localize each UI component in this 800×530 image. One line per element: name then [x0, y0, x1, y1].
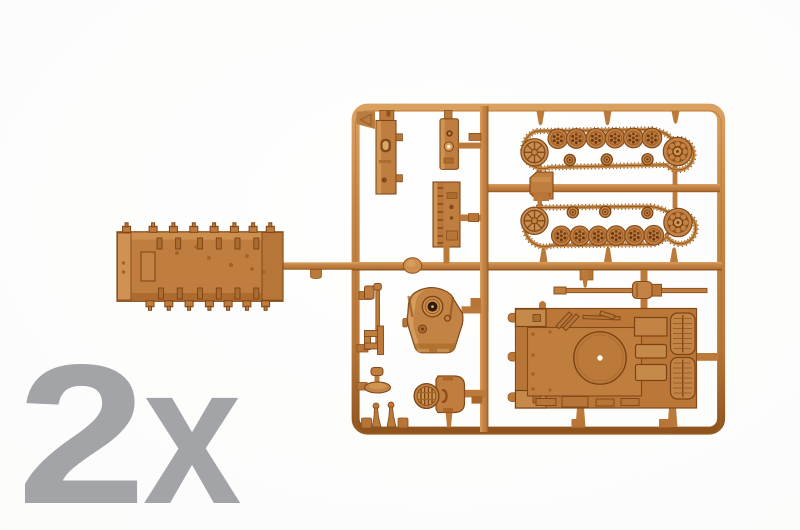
svg-text:2: 2: [17, 323, 146, 530]
svg-text:x: x: [143, 322, 242, 530]
